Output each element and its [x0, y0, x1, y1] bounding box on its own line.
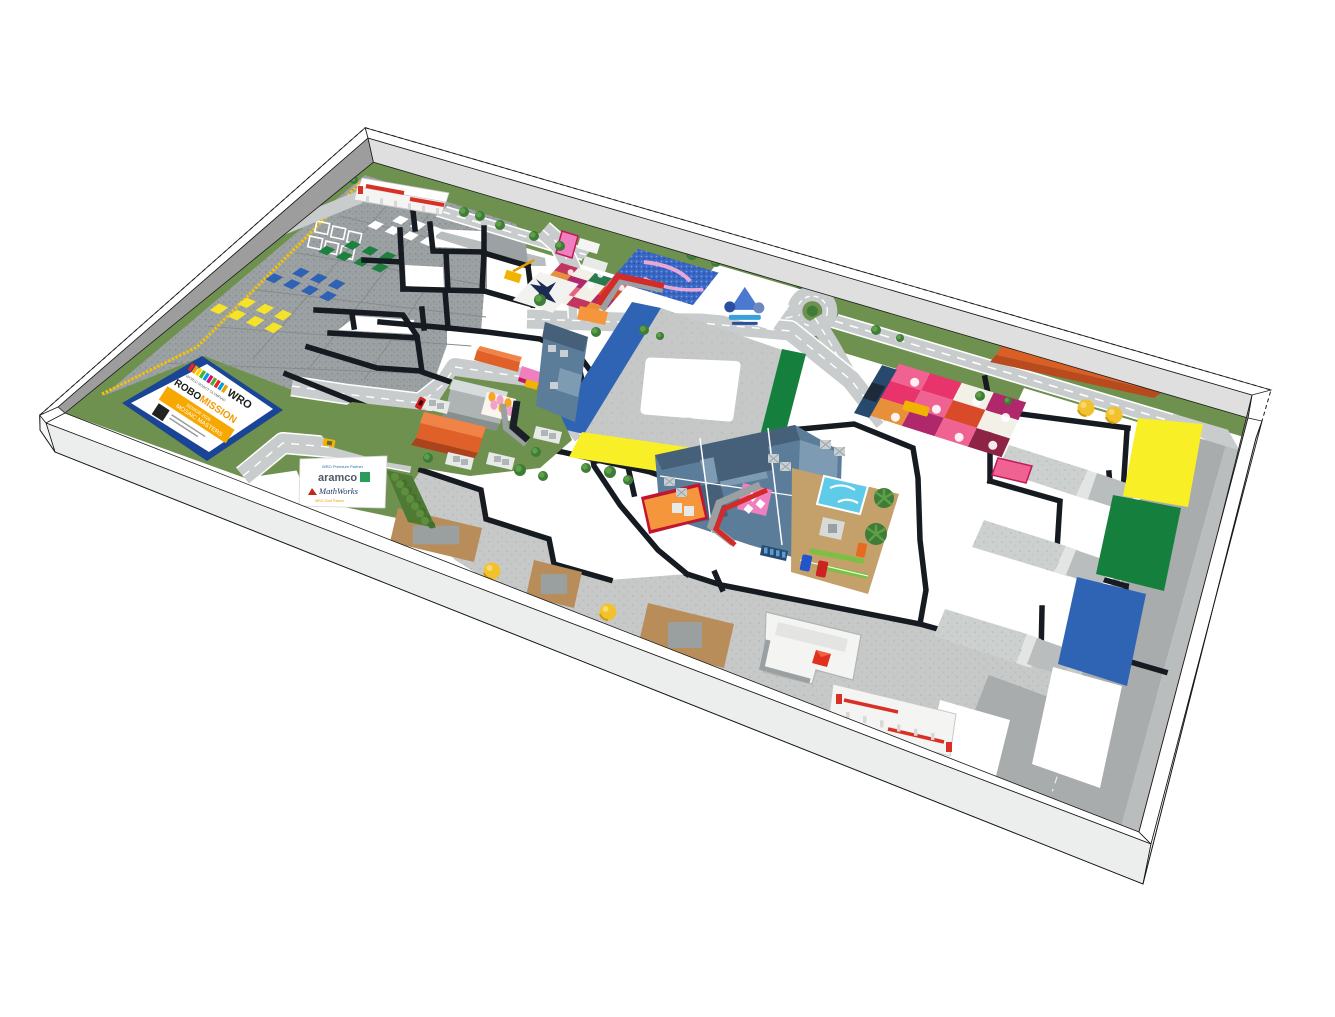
svg-text:MathWorks: MathWorks	[318, 486, 359, 496]
svg-text:WRO Premium Partner: WRO Premium Partner	[322, 464, 364, 469]
svg-text:WRO Gold Partner: WRO Gold Partner	[315, 499, 345, 503]
svg-text:aramco: aramco	[318, 472, 357, 484]
